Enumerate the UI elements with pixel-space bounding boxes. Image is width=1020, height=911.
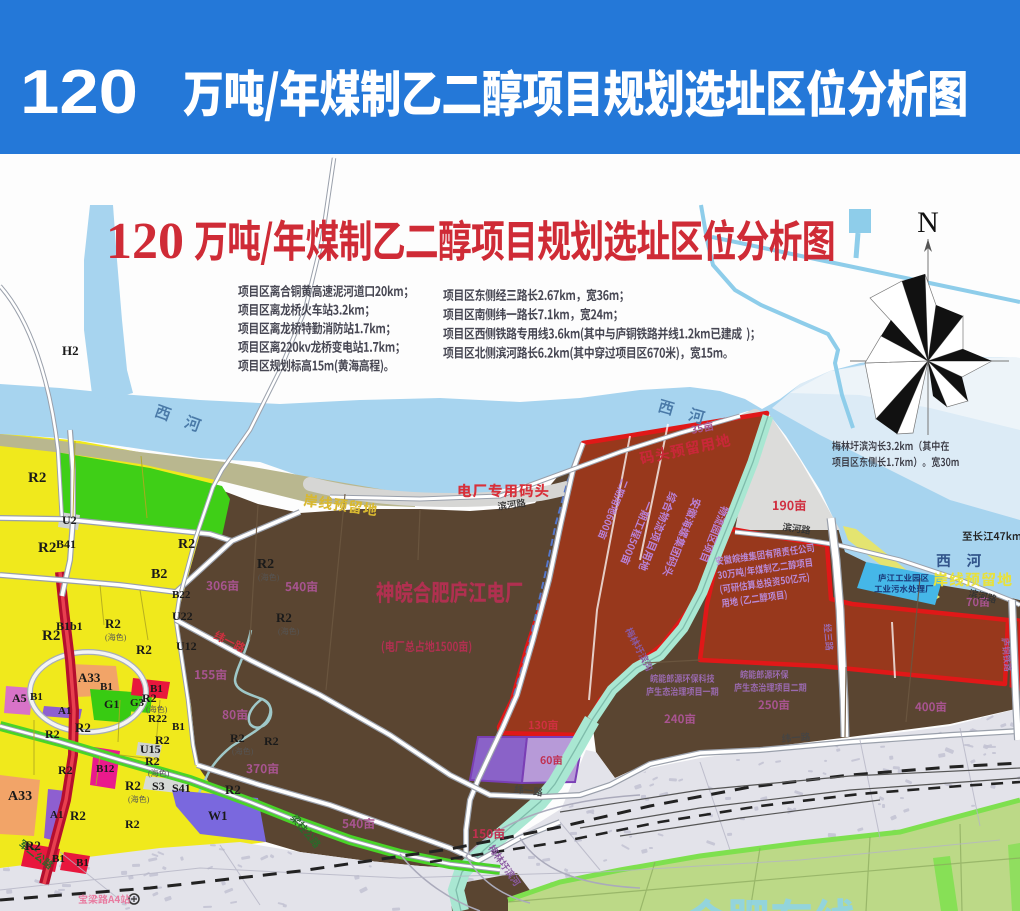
svg-text:B2: B2 — [151, 567, 167, 582]
svg-text:R2: R2 — [28, 470, 46, 486]
svg-text:R2: R2 — [145, 754, 160, 768]
svg-text:A1: A1 — [58, 705, 71, 717]
svg-text:(海色): (海色) — [148, 768, 170, 778]
svg-text:120: 120 — [106, 213, 184, 270]
svg-text:B1b1: B1b1 — [56, 619, 83, 633]
svg-text:S41: S41 — [172, 781, 191, 795]
svg-text:U12: U12 — [176, 639, 197, 653]
svg-text:R2: R2 — [230, 731, 245, 745]
svg-text:(海色): (海色) — [232, 746, 254, 756]
svg-text:B1: B1 — [76, 857, 89, 869]
svg-text:R2: R2 — [75, 720, 91, 735]
svg-text:B12: B12 — [96, 763, 115, 775]
svg-text:R2: R2 — [136, 642, 152, 657]
svg-text:R2: R2 — [38, 540, 56, 556]
svg-text:A33: A33 — [8, 789, 32, 804]
svg-text:B1: B1 — [100, 681, 113, 693]
svg-text:R2: R2 — [125, 778, 141, 793]
svg-text:R2: R2 — [70, 808, 86, 823]
svg-text:(海色): (海色) — [278, 626, 300, 636]
svg-text:R2: R2 — [264, 734, 279, 748]
svg-text:A1: A1 — [50, 809, 63, 821]
svg-text:G3: G3 — [130, 697, 145, 709]
svg-text:B1: B1 — [30, 691, 43, 703]
svg-text:(海色): (海色) — [105, 632, 127, 642]
svg-text:(海色): (海色) — [146, 704, 168, 714]
svg-text:H2: H2 — [62, 343, 79, 358]
svg-text:A5: A5 — [12, 691, 27, 705]
svg-text:R2: R2 — [45, 727, 60, 741]
svg-text:U15: U15 — [140, 742, 161, 756]
svg-text:A33: A33 — [78, 670, 101, 685]
svg-text:U22: U22 — [172, 609, 193, 623]
svg-text:120: 120 — [20, 58, 138, 127]
svg-text:U2: U2 — [62, 513, 77, 527]
svg-text:R2: R2 — [105, 616, 121, 631]
svg-text:(海色): (海色) — [128, 794, 150, 804]
svg-text:R2: R2 — [58, 763, 73, 777]
svg-text:W1: W1 — [208, 808, 228, 823]
svg-text:R2: R2 — [257, 557, 274, 572]
svg-text:B1: B1 — [52, 853, 65, 865]
svg-text:R2: R2 — [225, 782, 241, 797]
svg-text:S3: S3 — [152, 779, 165, 793]
svg-text:B41: B41 — [56, 537, 76, 551]
svg-text:G1: G1 — [104, 697, 119, 711]
svg-text:B1: B1 — [172, 721, 185, 733]
svg-text:R2: R2 — [25, 838, 41, 853]
svg-text:R2: R2 — [276, 610, 292, 625]
svg-text:R22: R22 — [148, 713, 167, 725]
svg-text:(海色): (海色) — [258, 572, 280, 582]
svg-text:B22: B22 — [172, 589, 191, 601]
svg-text:N: N — [917, 206, 939, 239]
svg-text:B1: B1 — [150, 683, 163, 695]
svg-text:R2: R2 — [125, 817, 140, 831]
svg-text:R2: R2 — [178, 537, 195, 552]
